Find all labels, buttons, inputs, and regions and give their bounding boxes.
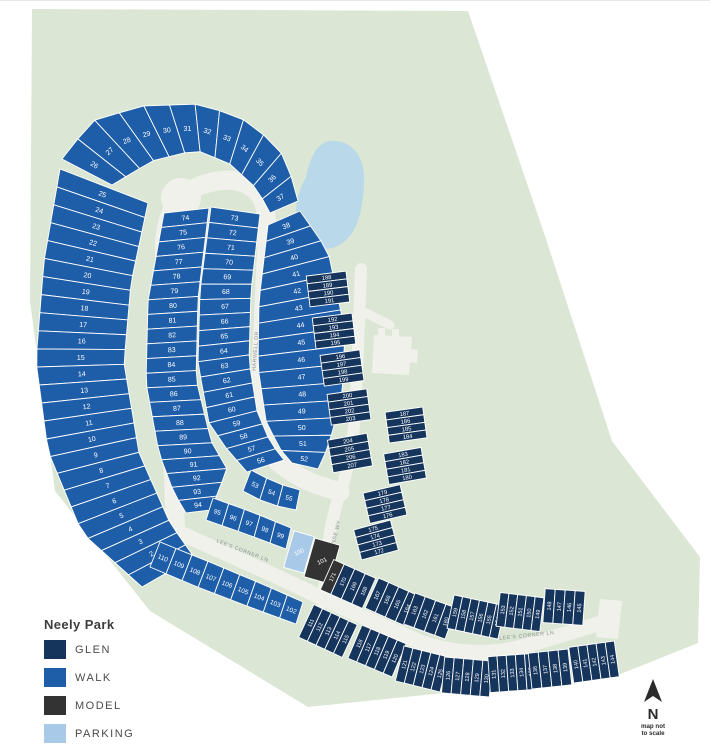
lot-number: 92: [193, 475, 201, 483]
lot-number: 144: [610, 654, 617, 664]
lot-number: 151: [517, 607, 524, 617]
legend-item-glen: GLEN: [44, 640, 194, 659]
clubhouse-detail: [392, 329, 399, 337]
lot-number: 128: [465, 672, 472, 682]
lot-number: 141: [582, 658, 589, 668]
lot-number: 49: [298, 408, 306, 415]
compass: Nmap notto scale: [641, 679, 665, 737]
lot-cluster-g204: 204205206207: [327, 433, 372, 472]
lot-number: 68: [222, 289, 230, 296]
lot-number: 63: [220, 362, 229, 370]
legend-swatch-model: [44, 696, 66, 715]
legend: Neely Park GLENWALKMODELPARKING: [44, 617, 194, 752]
lot-number: 143: [600, 656, 607, 666]
lot-number: 132: [501, 669, 508, 679]
lot-number: 90: [184, 448, 192, 455]
legend-item-model: MODEL: [44, 696, 194, 715]
lot-number: 81: [168, 317, 176, 324]
lot-number: 73: [230, 215, 239, 223]
lot-number: 66: [221, 318, 229, 325]
lot-number: 51: [299, 441, 307, 448]
legend-item-walk: WALK: [44, 668, 194, 687]
lot-number: 83: [168, 347, 176, 354]
compass-n-label: N: [648, 706, 659, 723]
lot-cluster-tL: 136137138139: [528, 649, 572, 689]
lot-number: 20: [83, 272, 92, 280]
lot-number: 134: [519, 667, 526, 677]
lot-cluster-tM: 140141142143144: [569, 641, 620, 683]
lot-number: 78: [172, 273, 180, 281]
lot-number: 84: [167, 362, 175, 369]
lot-number: 52: [300, 456, 309, 464]
lot-number: 76: [177, 244, 185, 252]
compass-note: map not: [641, 723, 665, 730]
lot-number: 148: [547, 601, 554, 611]
lot-number: 30: [163, 127, 172, 135]
lot-cluster-g183: 183182181180: [384, 447, 427, 484]
lot-number: 70: [225, 259, 233, 266]
lot-number: 44: [296, 322, 305, 330]
lot-number: 64: [220, 348, 229, 356]
lot-number: 87: [173, 405, 181, 412]
lot-number: 136: [533, 666, 540, 676]
lot-number: 149: [535, 609, 542, 619]
lot-number: 86: [170, 391, 178, 398]
lot-number: 50: [298, 425, 306, 432]
lot-number: 72: [228, 230, 237, 238]
legend-swatch-glen: [44, 640, 66, 659]
lot-number: 13: [80, 387, 88, 395]
lot-number: 147: [557, 602, 564, 612]
lot-cluster-tF: 148147146145: [543, 589, 585, 626]
lot-number: 138: [553, 663, 560, 673]
lot-number: 93: [193, 489, 202, 497]
lot-cluster-tE: 153152151150149: [496, 592, 544, 631]
lot-number: 146: [567, 603, 574, 613]
lot-number: 79: [170, 288, 178, 296]
lot-number: 82: [168, 332, 176, 339]
lot-number: 18: [80, 305, 89, 313]
lot-number: 195: [330, 340, 340, 347]
lot-number: 71: [227, 244, 235, 252]
lot-number: 150: [526, 608, 533, 618]
lot-number: 126: [445, 671, 452, 681]
lot-number: 47: [297, 374, 305, 382]
lot-number: 74: [181, 215, 190, 223]
lot-number: 75: [179, 229, 188, 237]
lot-number: 129: [474, 673, 481, 683]
lot-number: 191: [324, 298, 334, 305]
road-stub: [596, 599, 622, 639]
lot-number: 14: [78, 371, 86, 378]
legend-label: GLEN: [75, 644, 111, 656]
legend-label: PARKING: [75, 728, 134, 740]
lot-number: 45: [297, 339, 306, 347]
lot-number: 152: [509, 606, 516, 616]
lot-cluster-g196: 196197198199: [320, 350, 364, 386]
lot-number: 65: [220, 333, 229, 341]
lot-number: 140: [573, 659, 580, 669]
lot-number: 48: [298, 391, 306, 399]
lot-number: 85: [168, 376, 176, 383]
clubhouse-detail: [378, 328, 385, 336]
lot-number: 91: [190, 461, 198, 469]
lot-number: 89: [179, 434, 187, 441]
lot-number: 46: [297, 357, 306, 365]
lot-number: 94: [194, 502, 203, 510]
north-arrow-icon: [644, 679, 662, 702]
lot-number: 153: [500, 605, 507, 615]
lot-number: 17: [79, 322, 87, 329]
lot-number: 31: [183, 126, 191, 133]
lot-number: 131: [491, 669, 498, 679]
compass-note: to scale: [641, 730, 665, 737]
lot-number: 145: [577, 603, 584, 613]
lot-number: 19: [81, 289, 90, 297]
lot-number: 80: [169, 303, 177, 311]
lot-number: 77: [175, 259, 183, 267]
lot-number: 139: [562, 662, 569, 672]
lot-cluster-tJ: 126127128129130: [442, 657, 493, 697]
lot-number: 133: [510, 668, 517, 678]
lot-cluster-g187: 187186185184: [385, 407, 427, 443]
lot-number: 127: [455, 671, 462, 681]
legend-swatch-parking: [44, 724, 66, 743]
legend-items: GLENWALKMODELPARKING: [44, 640, 194, 743]
lot-number: 11: [85, 420, 93, 428]
lot-number: 69: [223, 274, 231, 281]
legend-label: WALK: [75, 672, 112, 684]
legend-label: MODEL: [75, 700, 122, 712]
lot-number: 43: [294, 305, 303, 313]
lot-number: 12: [82, 403, 91, 411]
lot-number: 88: [176, 420, 184, 427]
lot-number: 16: [78, 338, 86, 345]
legend-item-parking: PARKING: [44, 724, 194, 743]
lot-cluster-g200: 200201202203: [327, 389, 371, 425]
lot-number: 62: [222, 377, 231, 385]
legend-title: Neely Park: [44, 617, 194, 632]
lot-cluster-g188: 188189190191: [306, 271, 349, 307]
legend-swatch-walk: [44, 668, 66, 687]
lot-number: 15: [77, 355, 85, 362]
lot-number: 137: [543, 665, 550, 675]
lot-number: 67: [221, 304, 229, 311]
lot-cluster-g192: 192193194195: [312, 313, 355, 349]
lot-number: 142: [591, 657, 598, 667]
